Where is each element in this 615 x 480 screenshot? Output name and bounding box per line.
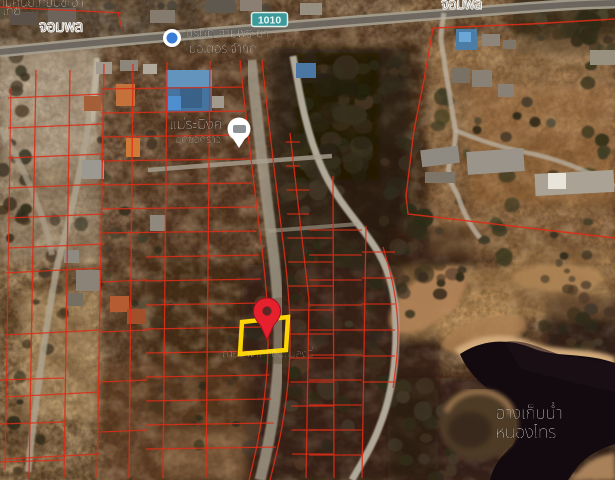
svg-text:1010: 1010 xyxy=(258,15,282,27)
